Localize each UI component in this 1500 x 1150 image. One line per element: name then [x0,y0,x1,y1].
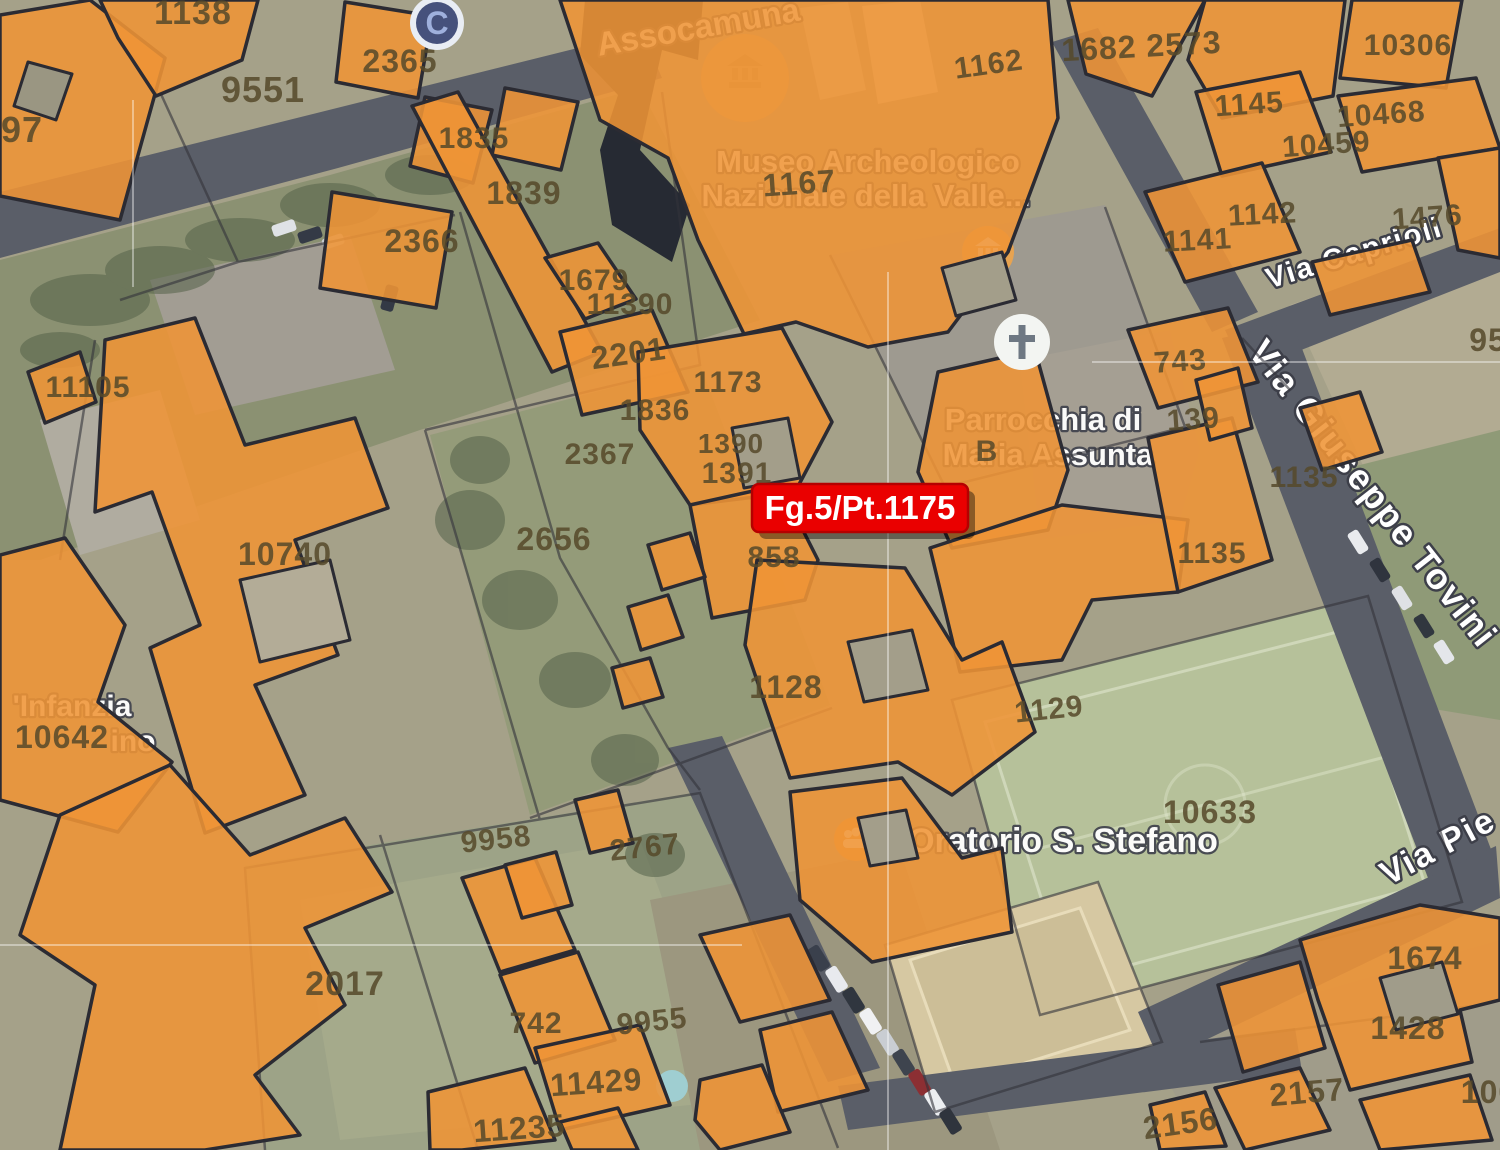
parcel-number: 11390 [587,288,674,321]
parcel-number: 1674 [1387,940,1462,976]
parcel-number: 10740 [238,536,332,572]
parcel-number: 1173 [693,366,762,399]
parcel-number: 1145 [1214,86,1285,124]
parcel-marker[interactable]: Fg.5/Pt.1175 [752,484,975,539]
parcel-number: 100 [1461,1074,1500,1110]
map-canvas[interactable]: Assocamuna Museo Archeologico Nazionale … [0,0,1500,1150]
parcel-number: 11429 [549,1061,644,1103]
parcel-number: 1836 [620,394,691,427]
parcel-number: 2367 [565,438,636,471]
parcel-number: 1135 [1177,537,1246,570]
parcel-number: 2157 [1268,1071,1346,1113]
parcel-number: 1167 [761,163,837,204]
c-badge-letter: C [425,5,448,41]
parcel-number: B [976,435,999,468]
parcel-number: 10459 [1281,125,1372,164]
parcel-number: 2656 [516,521,591,557]
parcel-number: 95 [1469,322,1500,358]
parcel-number: 11235 [472,1107,567,1149]
parcel-number: 1390 [698,428,764,459]
parcel-number: 139 [1166,401,1221,438]
parcel-number: 97 [1,109,43,150]
parcel-number: 2366 [384,223,459,259]
parcel-number: 1135 [1269,461,1338,494]
parcel-number: 1839 [486,175,561,211]
parcel-number: 10306 [1364,29,1452,62]
parcel-number: 742 [509,1007,562,1040]
parcel-number: 2017 [305,965,385,1003]
parcel-number: 1128 [749,669,822,705]
cadastral-map[interactable]: Assocamuna Museo Archeologico Nazionale … [0,0,1500,1150]
parcel-number: 10642 [15,719,109,755]
parcel-number: 1835 [439,122,510,155]
parcel-number: 1138 [154,0,232,32]
parcel-number: 1428 [1370,1010,1445,1046]
parcel-number: 11105 [45,371,130,404]
parcel-marker-label: Fg.5/Pt.1175 [765,489,956,526]
parcel-number: 1141 [1162,222,1233,259]
parcel-number: 1476 [1391,199,1464,237]
parcel-number: 10633 [1163,794,1257,830]
parcel-number: 2365 [362,43,437,79]
parcel-number: 858 [747,541,800,574]
church-pin-icon[interactable] [994,314,1050,370]
parcel-number: 9551 [221,69,305,110]
parcel-number: 1142 [1227,196,1298,233]
